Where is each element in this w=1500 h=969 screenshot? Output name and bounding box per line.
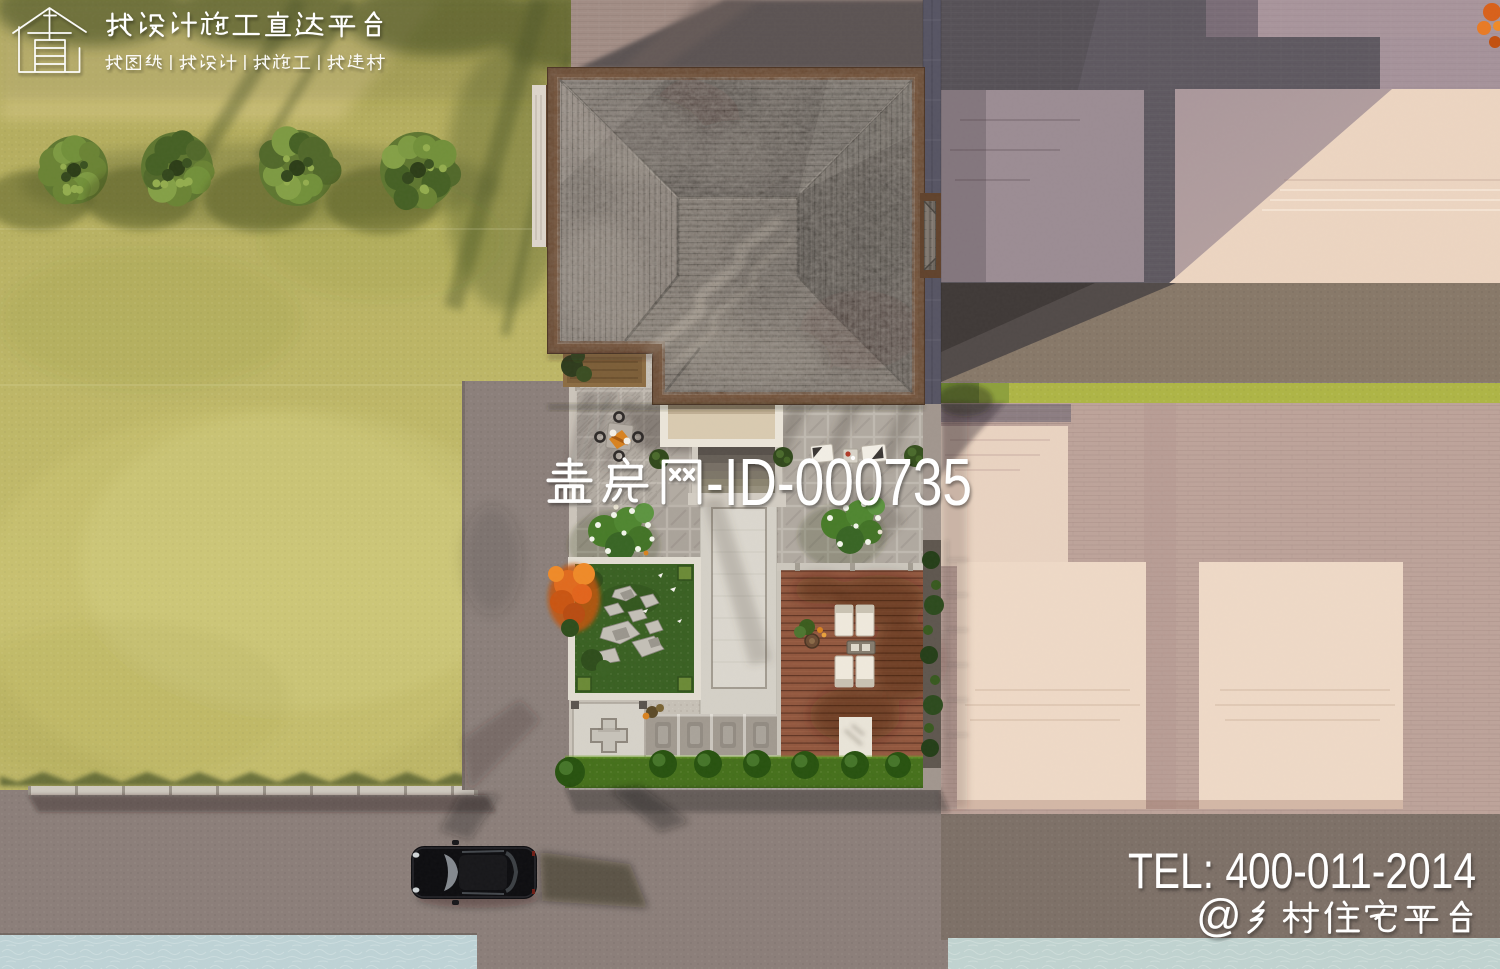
svg-text:@: @ [1196,890,1242,941]
svg-text:-ID-000735: -ID-000735 [706,445,972,520]
svg-text:TEL: 400-011-2014: TEL: 400-011-2014 [1128,843,1476,899]
